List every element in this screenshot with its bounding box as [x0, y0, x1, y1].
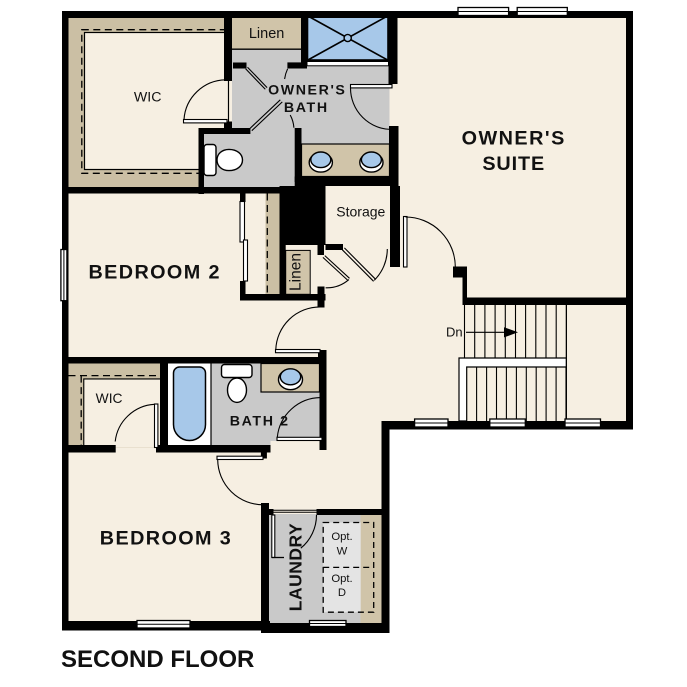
svg-text:Linen: Linen [249, 26, 284, 42]
svg-text:LAUNDRY: LAUNDRY [286, 523, 306, 611]
svg-text:Storage: Storage [336, 204, 385, 220]
svg-text:BEDROOM 2: BEDROOM 2 [88, 262, 220, 284]
svg-text:WIC: WIC [96, 391, 123, 406]
svg-text:D: D [338, 587, 346, 599]
svg-text:BEDROOM 3: BEDROOM 3 [100, 528, 232, 550]
svg-text:WIC: WIC [134, 90, 162, 106]
svg-text:Opt.: Opt. [331, 573, 352, 585]
svg-text:BATH: BATH [284, 100, 329, 116]
svg-text:BATH 2: BATH 2 [230, 413, 290, 429]
svg-text:OWNER'S: OWNER'S [462, 128, 566, 150]
svg-text:Dn: Dn [446, 325, 463, 340]
svg-text:W: W [337, 546, 348, 558]
svg-text:Linen: Linen [288, 253, 305, 291]
svg-text:Opt.: Opt. [331, 531, 352, 543]
svg-text:OWNER'S: OWNER'S [268, 83, 346, 99]
svg-text:SUITE: SUITE [482, 153, 545, 175]
svg-text:SECOND FLOOR: SECOND FLOOR [61, 646, 254, 673]
